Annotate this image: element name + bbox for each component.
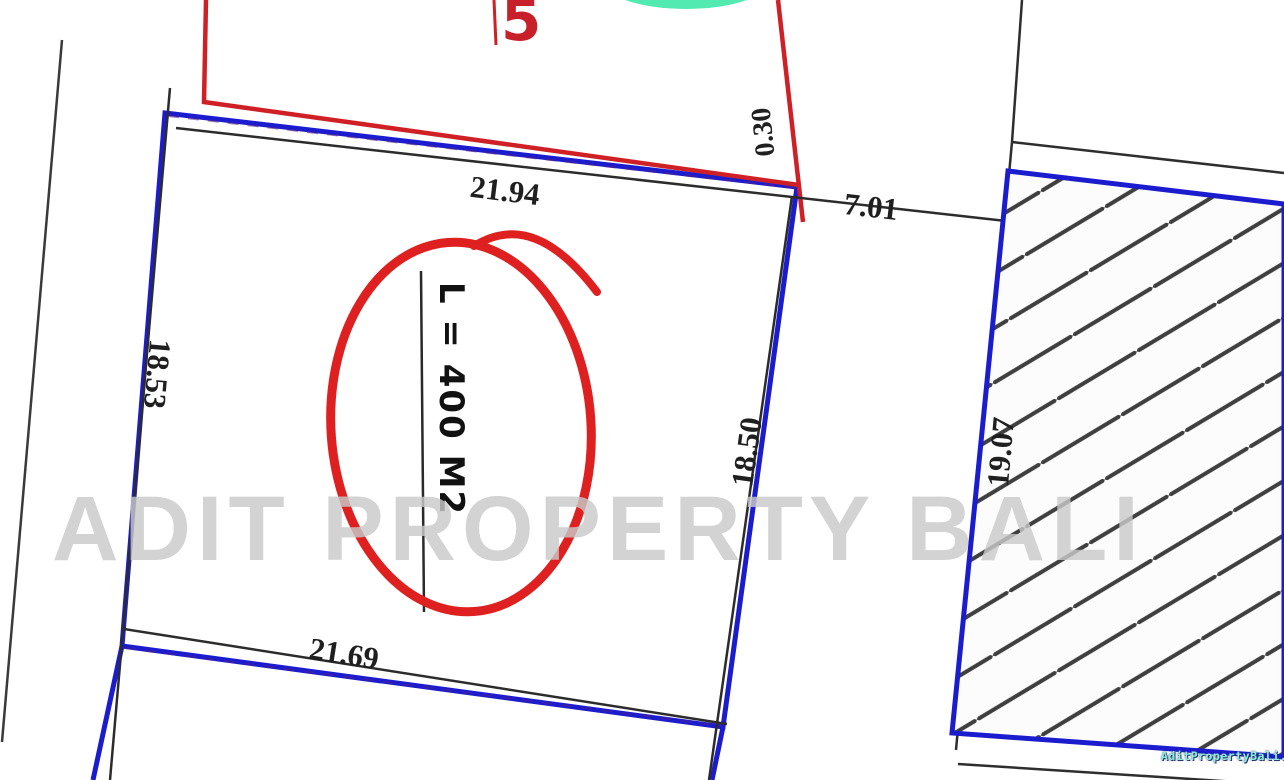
watermark-text: ADIT PROPERTY BALI — [52, 477, 1145, 582]
survey-linework — [0, 0, 1284, 780]
watermark-site-text: AditPropertyBali.com — [1161, 749, 1284, 763]
red-tick-line — [494, 0, 496, 45]
dimension-left-label: 18.53 — [136, 338, 178, 411]
dimension-top-right-label: 7.01 — [842, 186, 900, 228]
land-survey-drawing: 5 21.94 7.01 18.53 18.50 21.69 19.07 0.3… — [0, 0, 1284, 780]
green-mark — [601, 0, 771, 9]
dimension-offset-label: 0.30 — [746, 106, 783, 158]
plot-number-label: 5 — [501, 0, 541, 54]
road-edge-line — [2, 40, 62, 742]
